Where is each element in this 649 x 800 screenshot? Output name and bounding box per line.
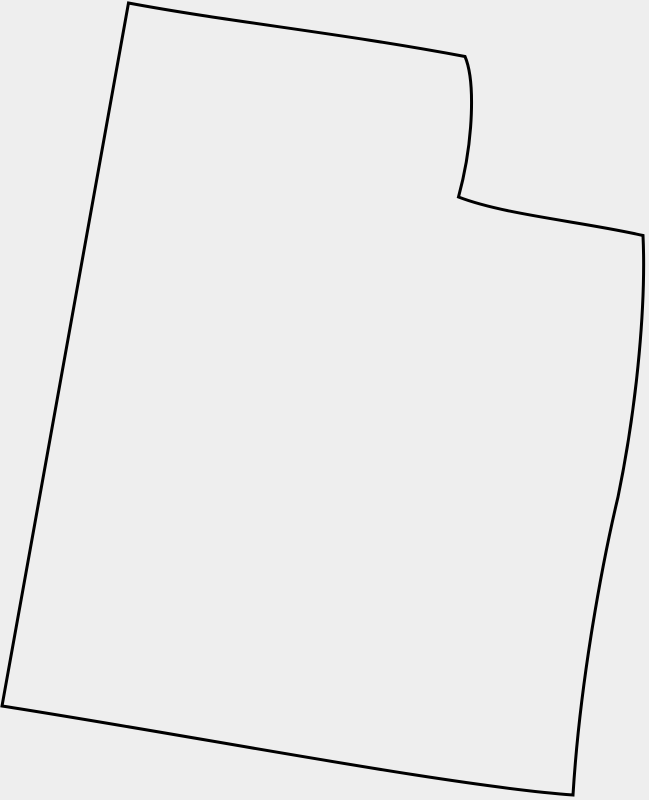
map-canvas [0,0,649,800]
utah-state-map [0,0,649,800]
utah-outline [2,3,644,795]
